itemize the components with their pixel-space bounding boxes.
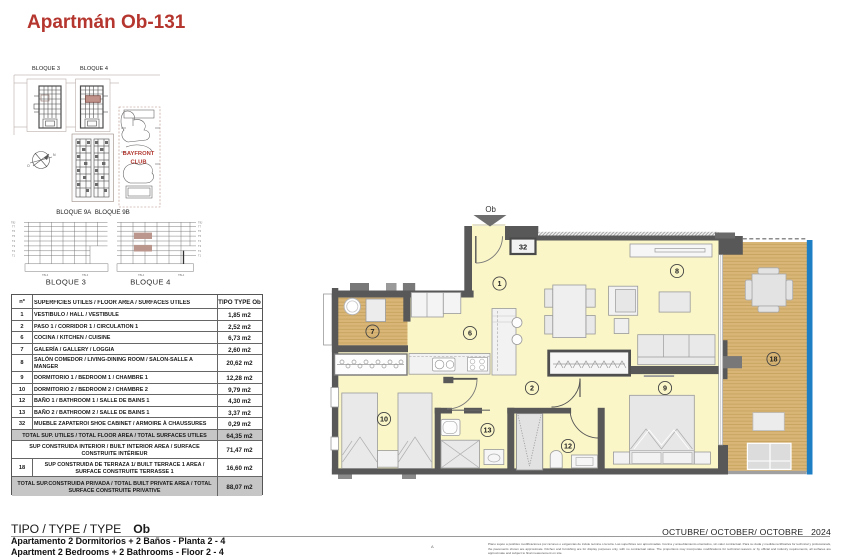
svg-text:2: 2 bbox=[530, 384, 534, 393]
svg-text:8: 8 bbox=[675, 267, 679, 276]
svg-text:T2: T2 bbox=[12, 249, 16, 253]
svg-text:TBL3: TBL3 bbox=[42, 273, 49, 277]
svg-text:O: O bbox=[27, 164, 30, 168]
svg-text:BLOQUE 9A BLOQUE 9B: BLOQUE 9A BLOQUE 9B bbox=[56, 209, 130, 216]
svg-text:TBL3: TBL3 bbox=[82, 273, 89, 277]
svg-text:Ob: Ob bbox=[485, 205, 496, 214]
svg-text:BAYFRONT: BAYFRONT bbox=[123, 151, 155, 157]
svg-text:T3: T3 bbox=[12, 244, 16, 248]
svg-text:32: 32 bbox=[519, 243, 527, 252]
svg-text:N: N bbox=[53, 153, 56, 157]
svg-text:10: 10 bbox=[380, 415, 388, 424]
svg-text:1: 1 bbox=[498, 279, 502, 288]
svg-text:T3: T3 bbox=[198, 244, 202, 248]
svg-text:T5: T5 bbox=[12, 234, 16, 238]
svg-text:BLOQUE 3: BLOQUE 3 bbox=[46, 278, 86, 287]
svg-text:T8J: T8J bbox=[11, 221, 16, 225]
svg-text:12: 12 bbox=[564, 442, 572, 451]
svg-text:T1: T1 bbox=[12, 254, 16, 258]
svg-text:T6: T6 bbox=[12, 229, 16, 233]
svg-text:CLUB: CLUB bbox=[130, 160, 146, 166]
svg-text:13: 13 bbox=[484, 426, 492, 435]
svg-text:T5: T5 bbox=[198, 234, 202, 238]
svg-text:7: 7 bbox=[371, 327, 375, 336]
svg-text:6: 6 bbox=[468, 329, 472, 338]
svg-text:T6: T6 bbox=[198, 229, 202, 233]
svg-text:T7: T7 bbox=[198, 225, 202, 229]
svg-text:TBL4: TBL4 bbox=[178, 273, 185, 277]
svg-text:T4: T4 bbox=[198, 239, 202, 243]
svg-text:T2: T2 bbox=[198, 249, 202, 253]
svg-text:T1: T1 bbox=[198, 254, 202, 258]
svg-text:18: 18 bbox=[770, 355, 778, 364]
svg-text:T7: T7 bbox=[12, 225, 16, 229]
svg-text:BLOQUE 4: BLOQUE 4 bbox=[80, 66, 108, 72]
svg-text:9: 9 bbox=[663, 384, 667, 393]
svg-text:BLOQUE 4: BLOQUE 4 bbox=[130, 278, 170, 287]
svg-text:T8J: T8J bbox=[198, 221, 203, 225]
svg-text:TBL4: TBL4 bbox=[138, 273, 145, 277]
svg-text:T4: T4 bbox=[12, 239, 16, 243]
svg-text:BLOQUE 3: BLOQUE 3 bbox=[32, 66, 60, 72]
